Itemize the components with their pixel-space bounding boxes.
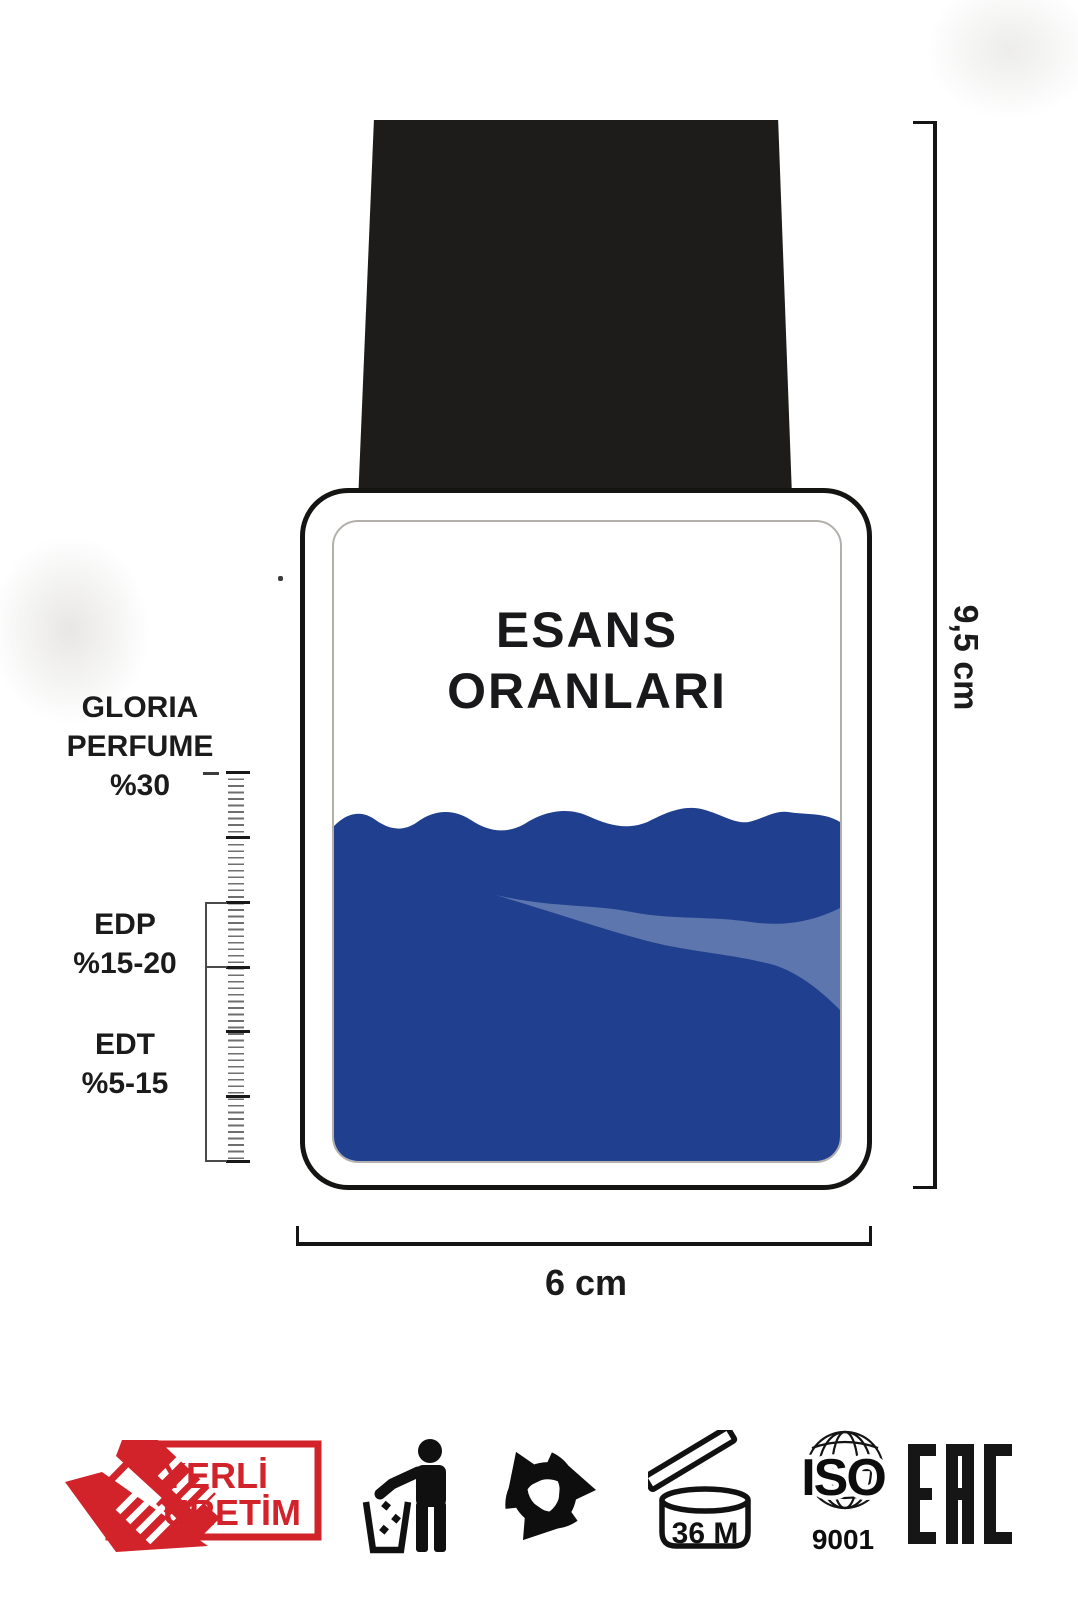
ruler-major-tick (226, 836, 250, 839)
background-smudge (925, 0, 1078, 120)
gloria-line1: GLORIA (50, 688, 230, 727)
pao-months-text: 36 M (672, 1517, 739, 1550)
background-speck (278, 576, 283, 581)
eac-icon (908, 1444, 1012, 1544)
ruler-major-tick (226, 1030, 250, 1033)
gloria-line2: PERFUME (50, 727, 230, 766)
width-dimension-value: 6 cm (486, 1262, 686, 1304)
ruler-major-tick (226, 771, 250, 774)
ruler-reference-dash (203, 772, 219, 775)
scale-label-edt: EDT %5-15 (35, 1025, 215, 1103)
iso-number-text: 9001 (812, 1524, 874, 1555)
width-dimension-line (296, 1226, 872, 1246)
iso-9001-icon: ISO 9001 (786, 1428, 896, 1560)
yerli-text: YERLİ (162, 1455, 268, 1496)
height-dimension-value: 9,5 cm (946, 603, 985, 713)
scale-label-edp: EDP %15-20 (35, 905, 215, 983)
infographic-canvas: ESANS ORANLARI GLORIA PERFUME %30 EDP %1… (0, 0, 1078, 1602)
ruler-major-tick (226, 1095, 250, 1098)
title-line-1: ESANS (334, 600, 840, 661)
edp-value: %15-20 (35, 944, 215, 983)
jar-rim (662, 1489, 748, 1511)
bottle-label: ESANS ORANLARI (332, 520, 842, 1163)
uretim-text: ÜRETİM (163, 1492, 301, 1533)
dispose-properly-icon (356, 1432, 466, 1556)
page-title: ESANS ORANLARI (334, 600, 840, 722)
edt-value: %5-15 (35, 1064, 215, 1103)
ruler-major-tick (226, 1160, 250, 1163)
liquid-fill-illustration (334, 796, 840, 1161)
liquid-wave (334, 808, 840, 1161)
title-line-2: ORANLARI (334, 661, 840, 722)
yerli-uretim-badge: YERLİ ÜRETİM (56, 1420, 326, 1555)
bottle-cap (356, 120, 793, 488)
edt-range-bracket (205, 966, 227, 1162)
edp-range-bracket (205, 902, 227, 968)
recycling-icon (486, 1432, 604, 1552)
ruler-major-tick (226, 901, 250, 904)
scale-label-gloria-perfume: GLORIA PERFUME %30 (50, 688, 230, 805)
edp-label: EDP (35, 905, 215, 944)
jar-lid (648, 1430, 735, 1490)
edt-label: EDT (35, 1025, 215, 1064)
ruler-major-tick (226, 966, 250, 969)
iso-text: ISO (801, 1449, 885, 1507)
height-dimension-line (913, 121, 937, 1189)
period-after-opening-icon: 36 M (648, 1430, 753, 1552)
